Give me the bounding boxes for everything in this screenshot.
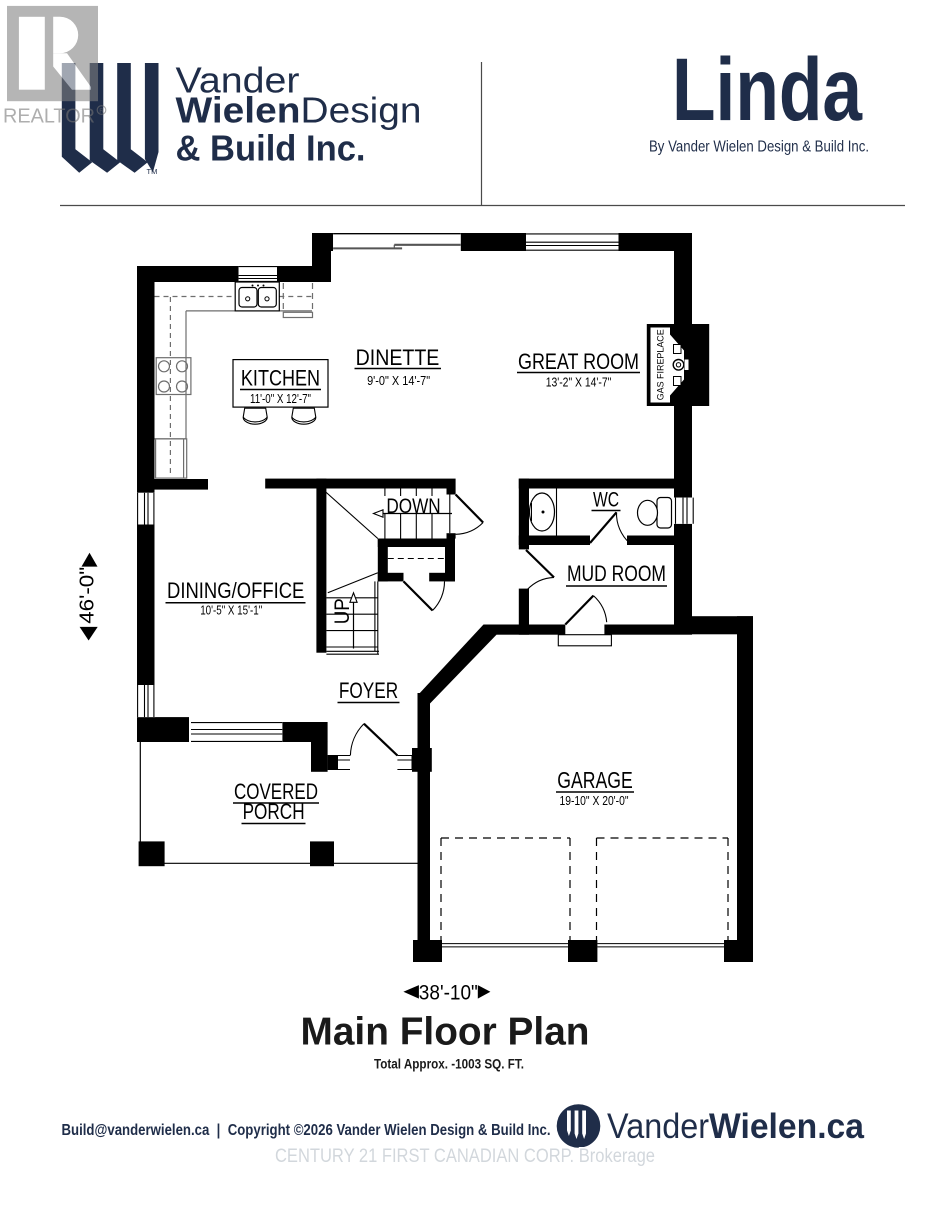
svg-text:KITCHEN: KITCHEN: [241, 366, 320, 391]
svg-text:19-10" X 20'-0": 19-10" X 20'-0": [560, 793, 629, 808]
svg-text:9'-0" X 14'-7": 9'-0" X 14'-7": [367, 373, 430, 388]
svg-text:GARAGE: GARAGE: [557, 767, 633, 793]
svg-text:& Build Inc.: & Build Inc.: [176, 128, 366, 169]
svg-text:Build@vanderwielen.ca | Copy: Build@vanderwielen.ca | Copyright ©2026 …: [62, 1122, 551, 1139]
svg-text:R: R: [99, 108, 104, 115]
svg-text:DINETTE: DINETTE: [356, 345, 440, 370]
svg-text:DOWN: DOWN: [386, 494, 440, 518]
svg-text:DINING/OFFICE: DINING/OFFICE: [167, 578, 304, 603]
svg-text:38'-10": 38'-10": [419, 982, 478, 1005]
svg-text:46'-0": 46'-0": [76, 567, 99, 624]
svg-text:PORCH: PORCH: [243, 799, 305, 824]
svg-text:Total Approx. -1003 SQ. FT.: Total Approx. -1003 SQ. FT.: [374, 1056, 524, 1072]
svg-text:CENTURY 21 FIRST CANADIAN CORP: CENTURY 21 FIRST CANADIAN CORP. Brokerag…: [275, 1146, 655, 1167]
svg-text:13'-2" X 14'-7": 13'-2" X 14'-7": [546, 374, 612, 389]
svg-text:FOYER: FOYER: [339, 678, 398, 703]
svg-text:11'-0" X 12'-7": 11'-0" X 12'-7": [250, 391, 311, 406]
svg-text:MUD ROOM: MUD ROOM: [567, 561, 666, 586]
svg-text:10'-5" X 15'-1": 10'-5" X 15'-1": [200, 603, 262, 618]
svg-text:By Vander Wielen Design & Buil: By Vander Wielen Design & Build Inc.: [649, 139, 869, 156]
svg-text:TM: TM: [147, 167, 158, 176]
svg-text:GREAT ROOM: GREAT ROOM: [518, 349, 639, 374]
svg-text:WC: WC: [593, 488, 619, 512]
svg-text:Linda: Linda: [672, 39, 863, 139]
svg-text:GAS FIREPLACE: GAS FIREPLACE: [655, 329, 666, 400]
svg-text:REALTOR: REALTOR: [3, 105, 95, 128]
svg-text:WielenDesign: WielenDesign: [176, 90, 422, 131]
svg-text:Main Floor Plan: Main Floor Plan: [301, 1011, 590, 1054]
svg-text:VanderWielen.ca: VanderWielen.ca: [607, 1107, 865, 1146]
